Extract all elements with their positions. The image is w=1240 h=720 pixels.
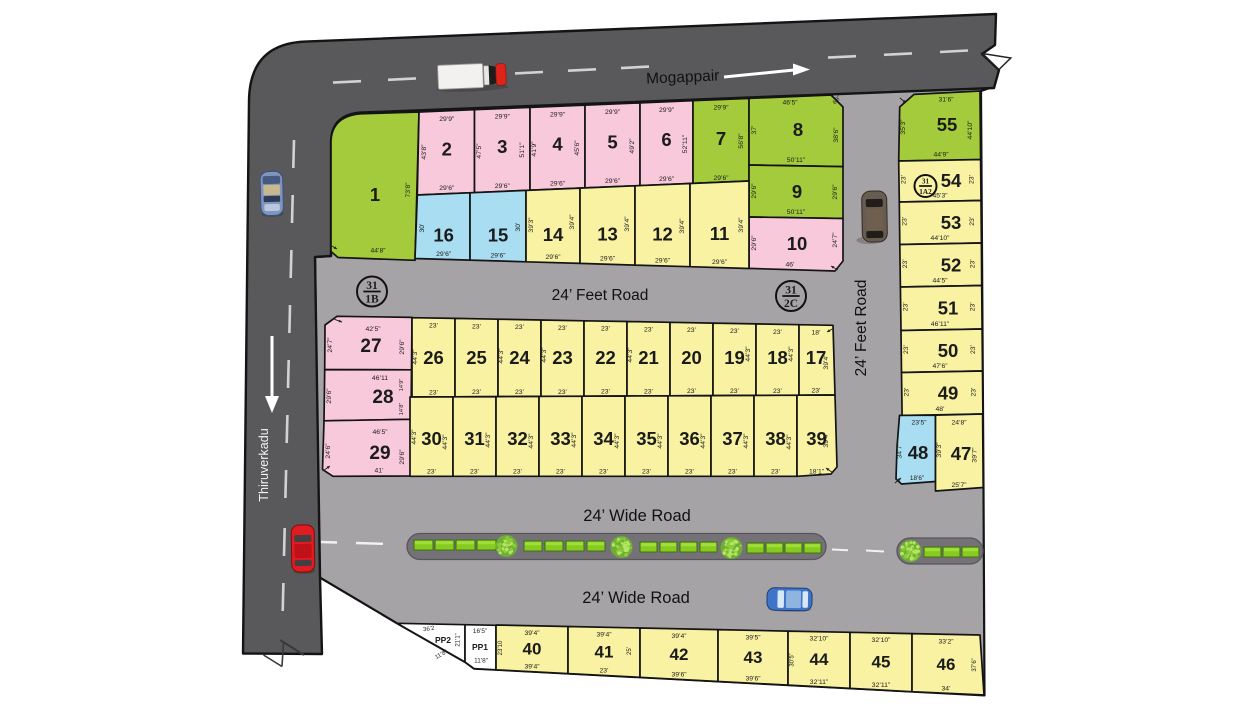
svg-text:29’6”: 29’6” <box>713 175 729 182</box>
svg-text:29’6”: 29’6” <box>655 257 671 264</box>
svg-text:34’7”: 34’7” <box>897 443 904 459</box>
svg-text:20: 20 <box>681 347 702 368</box>
svg-text:29’6”: 29’6” <box>439 185 455 192</box>
svg-text:PP2: PP2 <box>435 635 451 645</box>
svg-text:39’3”: 39’3” <box>528 217 535 233</box>
svg-text:39’4”: 39’4” <box>671 633 687 640</box>
svg-text:31: 31 <box>785 285 797 297</box>
svg-text:23’: 23’ <box>901 216 908 226</box>
svg-text:21’1”: 21’1” <box>456 633 462 646</box>
svg-text:34’: 34’ <box>941 685 951 692</box>
svg-text:3: 3 <box>497 136 507 157</box>
svg-text:41’: 41’ <box>374 468 384 475</box>
svg-text:52’11”: 52’11” <box>682 134 689 153</box>
svg-text:44’10”: 44’10” <box>931 235 951 242</box>
svg-text:29’6”: 29’6” <box>600 256 616 263</box>
svg-text:23’: 23’ <box>773 388 783 395</box>
svg-text:46’5”: 46’5” <box>372 429 388 436</box>
svg-text:23’: 23’ <box>970 344 977 354</box>
svg-text:29’6”: 29’6” <box>659 176 675 183</box>
svg-text:14’9”: 14’9” <box>399 379 405 392</box>
svg-text:29’6”: 29’6” <box>832 184 839 200</box>
svg-text:19: 19 <box>724 347 745 368</box>
svg-text:29’6”: 29’6” <box>436 251 452 258</box>
svg-text:23’: 23’ <box>687 327 697 334</box>
svg-text:37’: 37’ <box>751 125 758 135</box>
svg-text:32’10”: 32’10” <box>810 636 830 643</box>
svg-text:43’8”: 43’8” <box>421 144 428 160</box>
svg-text:35: 35 <box>636 428 657 449</box>
svg-text:10: 10 <box>787 233 808 254</box>
svg-text:34: 34 <box>593 428 614 449</box>
svg-text:6: 6 <box>661 129 671 150</box>
svg-text:23’: 23’ <box>472 389 482 396</box>
svg-text:44’3”: 44’3” <box>498 348 505 364</box>
svg-text:23’: 23’ <box>601 326 611 333</box>
svg-text:29’6”: 29’6” <box>399 339 406 355</box>
svg-text:23’: 23’ <box>811 388 821 395</box>
svg-text:23’: 23’ <box>470 469 480 476</box>
svg-text:44’3”: 44’3” <box>541 347 548 363</box>
svg-text:23’: 23’ <box>969 174 976 184</box>
svg-text:31: 31 <box>366 280 378 292</box>
svg-text:39’3”: 39’3” <box>936 442 943 458</box>
svg-text:18’: 18’ <box>811 329 821 336</box>
svg-text:29’6”: 29’6” <box>751 183 758 199</box>
svg-text:23’: 23’ <box>513 469 523 476</box>
svg-text:14’8”: 14’8” <box>399 403 405 416</box>
svg-text:39’4”: 39’4” <box>823 354 830 370</box>
svg-text:23: 23 <box>552 347 573 368</box>
svg-text:Mogappair: Mogappair <box>646 67 720 87</box>
svg-text:16: 16 <box>433 225 454 246</box>
svg-text:23’: 23’ <box>599 667 609 674</box>
svg-text:23’10: 23’10 <box>498 640 504 655</box>
svg-text:23’: 23’ <box>644 388 654 395</box>
svg-text:48: 48 <box>908 442 929 463</box>
svg-text:29’6”: 29’6” <box>550 181 566 188</box>
svg-text:28: 28 <box>372 387 393 408</box>
svg-text:1: 1 <box>370 184 380 205</box>
svg-text:31: 31 <box>922 178 930 186</box>
svg-text:29’9”: 29’9” <box>550 111 566 118</box>
svg-text:15: 15 <box>488 224 509 245</box>
svg-text:39’4”: 39’4” <box>569 214 576 230</box>
svg-text:45’6”: 45’6” <box>574 140 581 156</box>
svg-text:43: 43 <box>744 648 763 667</box>
svg-text:25’: 25’ <box>627 647 633 655</box>
svg-text:39’6”: 39’6” <box>671 671 687 678</box>
svg-text:29’6”: 29’6” <box>712 259 728 266</box>
svg-text:29’9”: 29’9” <box>605 109 621 116</box>
svg-text:46: 46 <box>937 655 956 674</box>
svg-text:45: 45 <box>872 653 891 672</box>
svg-text:44’3”: 44’3” <box>528 433 535 449</box>
svg-text:39’4”: 39’4” <box>624 216 631 232</box>
svg-text:51’1”: 51’1” <box>519 142 526 158</box>
svg-text:21: 21 <box>638 347 659 368</box>
svg-text:31’6”: 31’6” <box>938 97 954 104</box>
svg-text:44’3”: 44’3” <box>700 433 707 449</box>
svg-text:44’3”: 44’3” <box>442 434 449 450</box>
svg-text:49: 49 <box>938 383 959 404</box>
svg-text:23’: 23’ <box>969 216 976 226</box>
svg-text:54: 54 <box>941 170 962 191</box>
svg-text:33’2”: 33’2” <box>938 638 954 645</box>
svg-text:33: 33 <box>550 428 571 449</box>
svg-text:27: 27 <box>360 336 381 357</box>
svg-text:24’ Wide Road: 24’ Wide Road <box>583 507 691 525</box>
svg-text:24’8”: 24’8” <box>951 420 967 427</box>
svg-text:18’6”: 18’6” <box>910 475 924 482</box>
svg-text:39’7”: 39’7” <box>972 447 979 463</box>
svg-text:39’4”: 39’4” <box>524 630 540 637</box>
svg-text:23’: 23’ <box>902 302 909 312</box>
svg-text:29’9”: 29’9” <box>495 114 511 121</box>
svg-text:24: 24 <box>509 347 530 368</box>
svg-text:32’10”: 32’10” <box>872 637 892 644</box>
svg-text:PP1: PP1 <box>472 642 488 652</box>
svg-text:23’: 23’ <box>685 469 695 476</box>
svg-text:30’: 30’ <box>419 223 426 233</box>
svg-text:23’: 23’ <box>515 389 525 396</box>
svg-text:23’: 23’ <box>970 387 977 397</box>
svg-text:39’4”: 39’4” <box>524 664 540 671</box>
svg-text:14: 14 <box>543 224 564 245</box>
svg-text:23’: 23’ <box>904 387 911 397</box>
svg-text:44’3”: 44’3” <box>485 432 492 448</box>
svg-text:23’: 23’ <box>687 388 697 395</box>
svg-text:39’4”: 39’4” <box>738 217 745 233</box>
svg-text:23’: 23’ <box>558 325 568 332</box>
svg-text:23’: 23’ <box>515 324 525 331</box>
svg-text:24’6”: 24’6” <box>325 443 332 459</box>
svg-text:56’8”: 56’8” <box>738 133 745 149</box>
svg-text:23’: 23’ <box>730 328 740 335</box>
svg-text:44’5”: 44’5” <box>932 278 948 285</box>
svg-text:51: 51 <box>938 297 959 318</box>
svg-text:23’: 23’ <box>903 344 910 354</box>
svg-text:48’: 48’ <box>935 406 945 413</box>
svg-text:23’: 23’ <box>902 259 909 269</box>
svg-text:47’6”: 47’6” <box>932 363 948 370</box>
svg-text:29’6”: 29’6” <box>490 252 506 259</box>
svg-text:44’10”: 44’10” <box>967 120 974 140</box>
svg-text:7: 7 <box>716 128 726 149</box>
svg-text:39’4”: 39’4” <box>596 631 612 638</box>
svg-text:24’ Feet Road: 24’ Feet Road <box>552 287 649 304</box>
svg-text:47’5”: 47’5” <box>476 143 483 159</box>
svg-text:23’: 23’ <box>558 389 568 396</box>
svg-text:23’: 23’ <box>599 469 609 476</box>
svg-text:23’: 23’ <box>556 469 566 476</box>
svg-text:44’3”: 44’3” <box>745 346 752 362</box>
svg-text:24’ Feet Road: 24’ Feet Road <box>853 280 870 377</box>
svg-text:29’6”: 29’6” <box>605 178 621 185</box>
svg-text:24’ Wide Road: 24’ Wide Road <box>582 589 690 607</box>
svg-text:44’3”: 44’3” <box>743 433 750 449</box>
svg-text:50: 50 <box>938 340 959 361</box>
svg-text:29’9”: 29’9” <box>713 105 729 112</box>
svg-text:46’11”: 46’11” <box>931 321 950 328</box>
svg-text:29’9”: 29’9” <box>439 116 455 123</box>
svg-text:18’1”: 18’1” <box>809 469 825 476</box>
svg-text:8: 8 <box>793 119 803 140</box>
svg-text:25: 25 <box>466 347 487 368</box>
svg-text:39’4”: 39’4” <box>679 218 686 234</box>
svg-text:44’9”: 44’9” <box>933 152 949 159</box>
svg-text:25’7”: 25’7” <box>951 482 967 489</box>
svg-text:32: 32 <box>507 428 528 449</box>
svg-text:44’3”: 44’3” <box>627 347 634 363</box>
svg-text:18: 18 <box>767 347 788 368</box>
svg-text:44’3”: 44’3” <box>614 433 621 449</box>
svg-text:23’: 23’ <box>472 323 482 330</box>
svg-text:29’6”: 29’6” <box>495 183 511 190</box>
svg-text:22: 22 <box>595 347 616 368</box>
svg-text:23’: 23’ <box>728 469 738 476</box>
svg-text:32’11”: 32’11” <box>872 682 891 689</box>
svg-text:42: 42 <box>670 645 689 664</box>
svg-text:41: 41 <box>595 642 614 661</box>
svg-text:23’: 23’ <box>773 329 783 336</box>
svg-text:5: 5 <box>607 131 617 152</box>
svg-text:23’: 23’ <box>730 388 740 395</box>
svg-text:29’9”: 29’9” <box>659 107 675 114</box>
svg-text:29’6”: 29’6” <box>751 235 758 251</box>
svg-text:37’6”: 37’6” <box>972 658 978 671</box>
svg-text:1B: 1B <box>365 294 379 306</box>
svg-text:40: 40 <box>523 640 542 659</box>
svg-text:38: 38 <box>765 428 786 449</box>
svg-text:46’5”: 46’5” <box>782 100 798 107</box>
svg-text:2: 2 <box>442 138 452 159</box>
svg-text:24’7”: 24’7” <box>832 232 839 248</box>
svg-text:44’3”: 44’3” <box>786 434 793 450</box>
svg-text:47: 47 <box>951 443 972 464</box>
svg-text:39’6”: 39’6” <box>745 675 761 682</box>
svg-text:23’: 23’ <box>969 259 976 269</box>
svg-text:44’3”: 44’3” <box>571 432 578 448</box>
svg-text:11: 11 <box>710 223 730 244</box>
svg-text:23’: 23’ <box>970 302 977 312</box>
svg-text:29’6”: 29’6” <box>326 388 333 404</box>
svg-text:55: 55 <box>937 114 958 135</box>
svg-text:39’4”: 39’4” <box>823 432 830 448</box>
svg-text:23’: 23’ <box>901 174 908 184</box>
svg-text:23’: 23’ <box>427 469 437 476</box>
svg-text:1A2: 1A2 <box>919 188 932 196</box>
svg-text:53: 53 <box>941 212 962 233</box>
svg-text:29’6”: 29’6” <box>545 254 561 261</box>
svg-text:4: 4 <box>552 134 563 155</box>
svg-text:44’8”: 44’8” <box>370 248 386 255</box>
svg-text:50’11”: 50’11” <box>787 157 806 164</box>
svg-text:30’5”: 30’5” <box>790 653 796 666</box>
svg-text:23’: 23’ <box>429 389 439 396</box>
svg-text:29: 29 <box>369 443 390 464</box>
svg-text:23’: 23’ <box>429 323 439 330</box>
svg-text:37: 37 <box>722 428 743 449</box>
svg-text:38’6”: 38’6” <box>833 127 840 143</box>
svg-text:35’3”: 35’3” <box>900 119 907 135</box>
svg-text:Thiruverkadu: Thiruverkadu <box>257 428 271 502</box>
svg-text:12: 12 <box>652 223 673 244</box>
svg-text:46’: 46’ <box>785 262 795 269</box>
svg-text:44’3”: 44’3” <box>657 433 664 449</box>
svg-text:46’11: 46’11 <box>372 375 388 382</box>
svg-text:42’5”: 42’5” <box>365 326 381 333</box>
svg-text:23’: 23’ <box>601 389 611 396</box>
svg-text:2C: 2C <box>784 298 798 310</box>
svg-text:16’5”: 16’5” <box>473 628 487 635</box>
svg-text:26: 26 <box>423 347 444 368</box>
svg-text:44’3”: 44’3” <box>412 349 419 365</box>
svg-text:44: 44 <box>810 650 829 669</box>
svg-text:49’2”: 49’2” <box>629 138 636 154</box>
svg-text:52: 52 <box>941 254 962 275</box>
svg-text:9: 9 <box>792 181 802 202</box>
svg-text:30: 30 <box>421 428 442 449</box>
svg-text:31: 31 <box>464 428 485 449</box>
svg-text:11’8”: 11’8” <box>474 658 488 665</box>
svg-text:23’: 23’ <box>642 469 652 476</box>
svg-text:30’: 30’ <box>515 222 522 232</box>
svg-text:44’3”: 44’3” <box>788 346 795 362</box>
svg-text:39’5”: 39’5” <box>745 634 761 641</box>
svg-text:23’: 23’ <box>771 469 781 476</box>
svg-text:32’11”: 32’11” <box>810 679 829 686</box>
svg-text:13: 13 <box>597 224 618 245</box>
svg-text:23’: 23’ <box>644 326 654 333</box>
svg-text:41’9”: 41’9” <box>531 141 538 157</box>
svg-text:36: 36 <box>679 428 700 449</box>
svg-text:23’5”: 23’5” <box>911 420 927 427</box>
svg-text:24’7”: 24’7” <box>327 337 334 353</box>
svg-text:50’11”: 50’11” <box>787 209 806 216</box>
svg-text:29’6”: 29’6” <box>399 449 406 465</box>
svg-text:44’3”: 44’3” <box>411 429 418 445</box>
svg-text:73’8”: 73’8” <box>405 182 412 198</box>
